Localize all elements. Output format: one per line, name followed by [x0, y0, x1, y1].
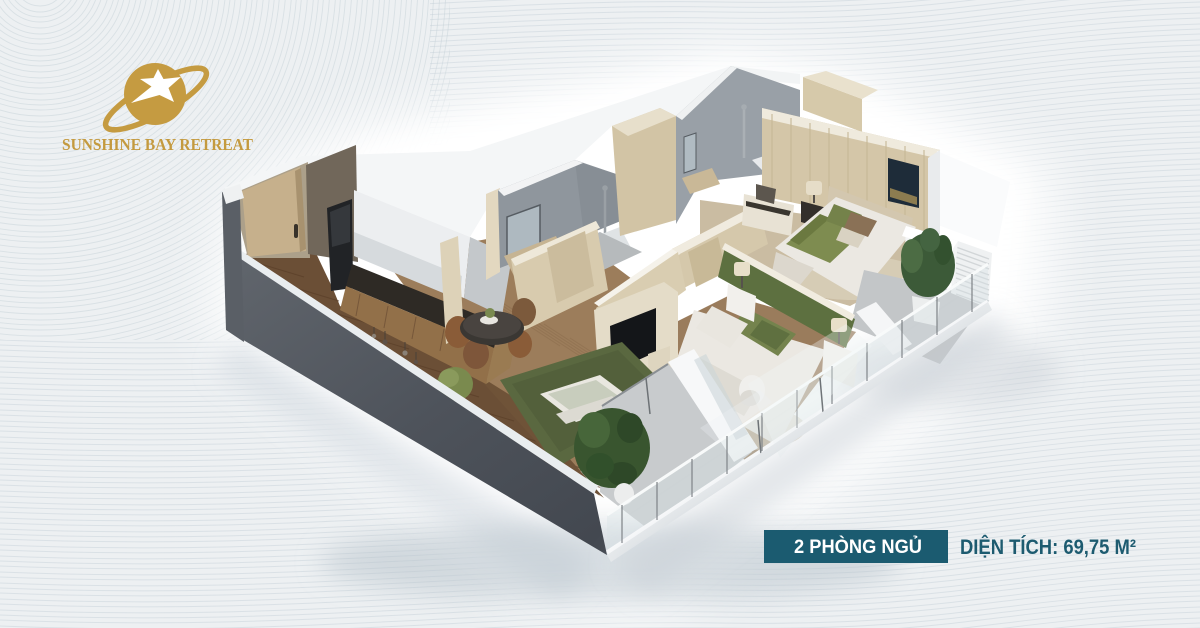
svg-text:SUNSHINE BAY RETREAT: SUNSHINE BAY RETREAT [62, 135, 254, 154]
svg-text:DIỆN TÍCH: 69,75 M²: DIỆN TÍCH: 69,75 M² [960, 535, 1136, 559]
svg-text:2 PHÒNG NGỦ: 2 PHÒNG NGỦ [794, 536, 922, 558]
